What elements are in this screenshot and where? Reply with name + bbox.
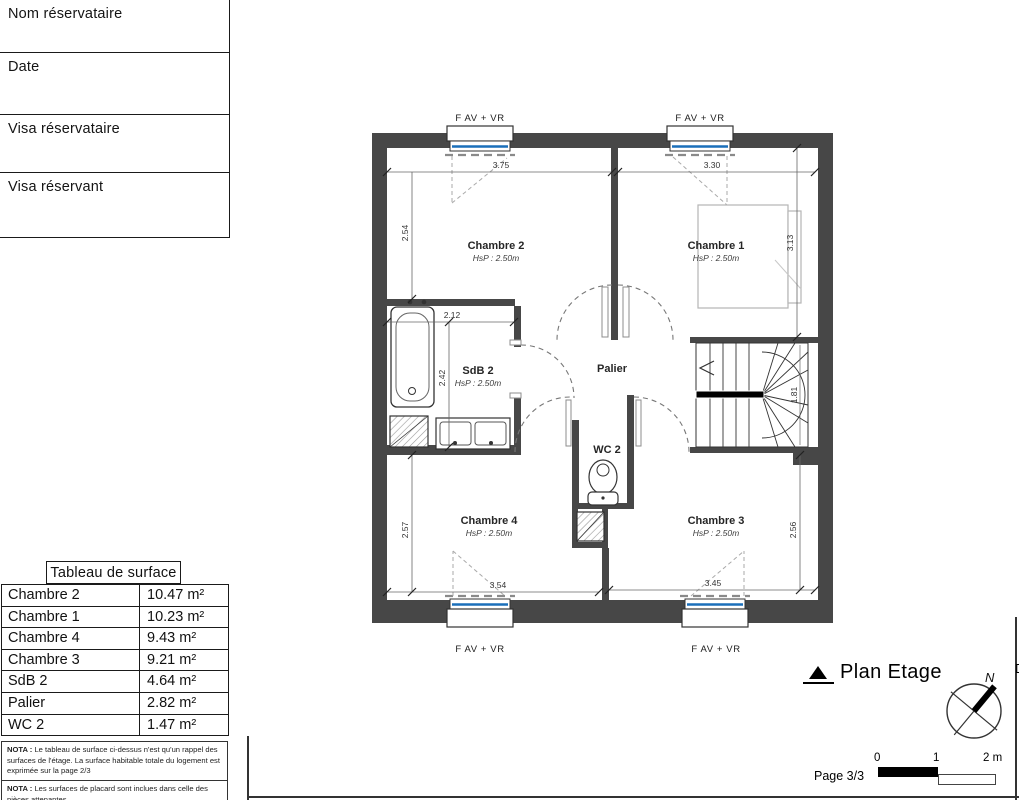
nota-notes: NOTA : Le tableau de surface ci-dessus n…	[1, 741, 228, 800]
room-hsp-chambre1: HsP : 2.50m	[693, 253, 739, 263]
window-label-ch3: F AV + VR	[691, 644, 740, 655]
frame-right-line	[1015, 617, 1017, 800]
room-hsp-chambre3: HsP : 2.50m	[693, 528, 739, 538]
nota-text: Les surfaces de placard sont inclues dan…	[7, 784, 208, 800]
room-area: 9.21 m²	[139, 650, 228, 671]
window-label-ch2: F AV + VR	[455, 113, 504, 124]
room-name: Chambre 2	[2, 585, 139, 606]
room-area: 2.82 m²	[139, 693, 228, 714]
bathtub-icon	[391, 300, 434, 407]
dim-sdb-height: 2.42	[437, 369, 447, 386]
table-row: Chambre 1 10.23 m²	[2, 607, 228, 629]
nota-label: NOTA :	[7, 745, 32, 754]
room-label-chambre1: Chambre 1	[688, 240, 745, 252]
room-area: 10.23 m²	[139, 607, 228, 628]
form-label: Date	[0, 53, 229, 75]
room-label-chambre2: Chambre 2	[468, 240, 525, 252]
room-name: Palier	[2, 693, 139, 714]
form-field-visa-reservant: Visa réservant	[0, 173, 229, 238]
form-field-nom-reservataire: Nom réservataire	[0, 0, 229, 53]
north-compass-icon: N	[939, 670, 1015, 754]
dim-ch1-height: 3.13	[785, 234, 795, 251]
nota-label: NOTA :	[7, 784, 32, 793]
form-field-date: Date	[0, 53, 229, 115]
window-chambre2	[445, 126, 515, 155]
room-name: Chambre 4	[2, 628, 139, 649]
dim-stairs: 1.81	[789, 386, 799, 403]
triangle-underline	[803, 682, 834, 684]
compass-north-label: N	[985, 670, 995, 685]
table-row: Chambre 2 10.47 m²	[2, 585, 228, 607]
table-row: SdB 2 4.64 m²	[2, 671, 228, 693]
room-label-chambre3: Chambre 3	[688, 515, 745, 527]
nota-2: NOTA : Les surfaces de placard sont incl…	[2, 781, 227, 800]
dim-ch3-height: 2.56	[788, 521, 798, 538]
room-name: WC 2	[2, 715, 139, 736]
room-name: Chambre 1	[2, 607, 139, 628]
toilet-icon	[588, 460, 618, 505]
scale-bar-black	[878, 767, 938, 777]
frame-divider-vertical	[247, 736, 249, 800]
nota-text: Le tableau de surface ci-dessus n'est qu…	[7, 745, 220, 775]
duct-hatched-sdb	[390, 416, 428, 447]
staircase: 1.81	[696, 343, 808, 447]
floor-plan-sheet: 1.81	[0, 0, 1019, 800]
room-name: SdB 2	[2, 671, 139, 692]
page-number: Page 3/3	[814, 769, 864, 783]
nota-1: NOTA : Le tableau de surface ci-dessus n…	[2, 742, 227, 781]
form-label: Visa réservataire	[0, 115, 229, 137]
scale-tick-1: 1	[933, 752, 939, 764]
window-chambre1	[665, 126, 735, 155]
table-row: WC 2 1.47 m²	[2, 715, 228, 737]
window-chambre4	[445, 596, 515, 627]
duct-hatched-wc	[577, 512, 604, 541]
dim-sdb-width: 2.12	[444, 310, 461, 320]
room-area: 9.43 m²	[139, 628, 228, 649]
room-area: 10.47 m²	[139, 585, 228, 606]
scale-tick-0: 0	[874, 752, 880, 764]
dim-ch1-width: 3.30	[704, 160, 721, 170]
room-hsp-chambre2: HsP : 2.50m	[473, 253, 519, 263]
frame-bottom-line	[247, 796, 1019, 798]
room-label-palier: Palier	[597, 363, 628, 375]
dim-ch2-height: 2.54	[400, 224, 410, 241]
room-area: 1.47 m²	[139, 715, 228, 736]
table-row: Chambre 3 9.21 m²	[2, 650, 228, 672]
double-washbasin-icon	[436, 418, 510, 449]
reservation-form: Nom réservataire Date Visa réservataire …	[0, 0, 230, 238]
clipped-edge-text: D	[1015, 661, 1019, 676]
form-label: Nom réservataire	[0, 0, 229, 22]
room-label-sdb2: SdB 2	[462, 365, 493, 377]
room-hsp-chambre4: HsP : 2.50m	[466, 528, 512, 538]
dim-ch4-height: 2.57	[400, 521, 410, 538]
dim-ch3-width: 3.45	[705, 578, 722, 588]
form-label: Visa réservant	[0, 173, 229, 195]
scale-bar-white	[938, 774, 996, 785]
dim-ch2-width: 3.75	[493, 160, 510, 170]
form-field-visa-reservataire: Visa réservataire	[0, 115, 229, 173]
room-area: 4.64 m²	[139, 671, 228, 692]
room-label-wc2: WC 2	[593, 444, 621, 456]
triangle-icon	[809, 666, 827, 679]
surface-table-title: Tableau de surface	[46, 561, 181, 584]
surface-table: Chambre 2 10.47 m² Chambre 1 10.23 m² Ch…	[1, 584, 229, 736]
dim-ch4-width: 3.54	[490, 580, 507, 590]
plan-title: Plan Etage	[840, 661, 942, 684]
window-label-ch4: F AV + VR	[455, 644, 504, 655]
window-chambre3	[680, 596, 750, 627]
window-label-ch1: F AV + VR	[675, 113, 724, 124]
scale-tick-2: 2 m	[983, 752, 1002, 764]
room-label-chambre4: Chambre 4	[461, 515, 519, 527]
room-name: Chambre 3	[2, 650, 139, 671]
table-row: Chambre 4 9.43 m²	[2, 628, 228, 650]
table-row: Palier 2.82 m²	[2, 693, 228, 715]
room-hsp-sdb2: HsP : 2.50m	[455, 378, 501, 388]
